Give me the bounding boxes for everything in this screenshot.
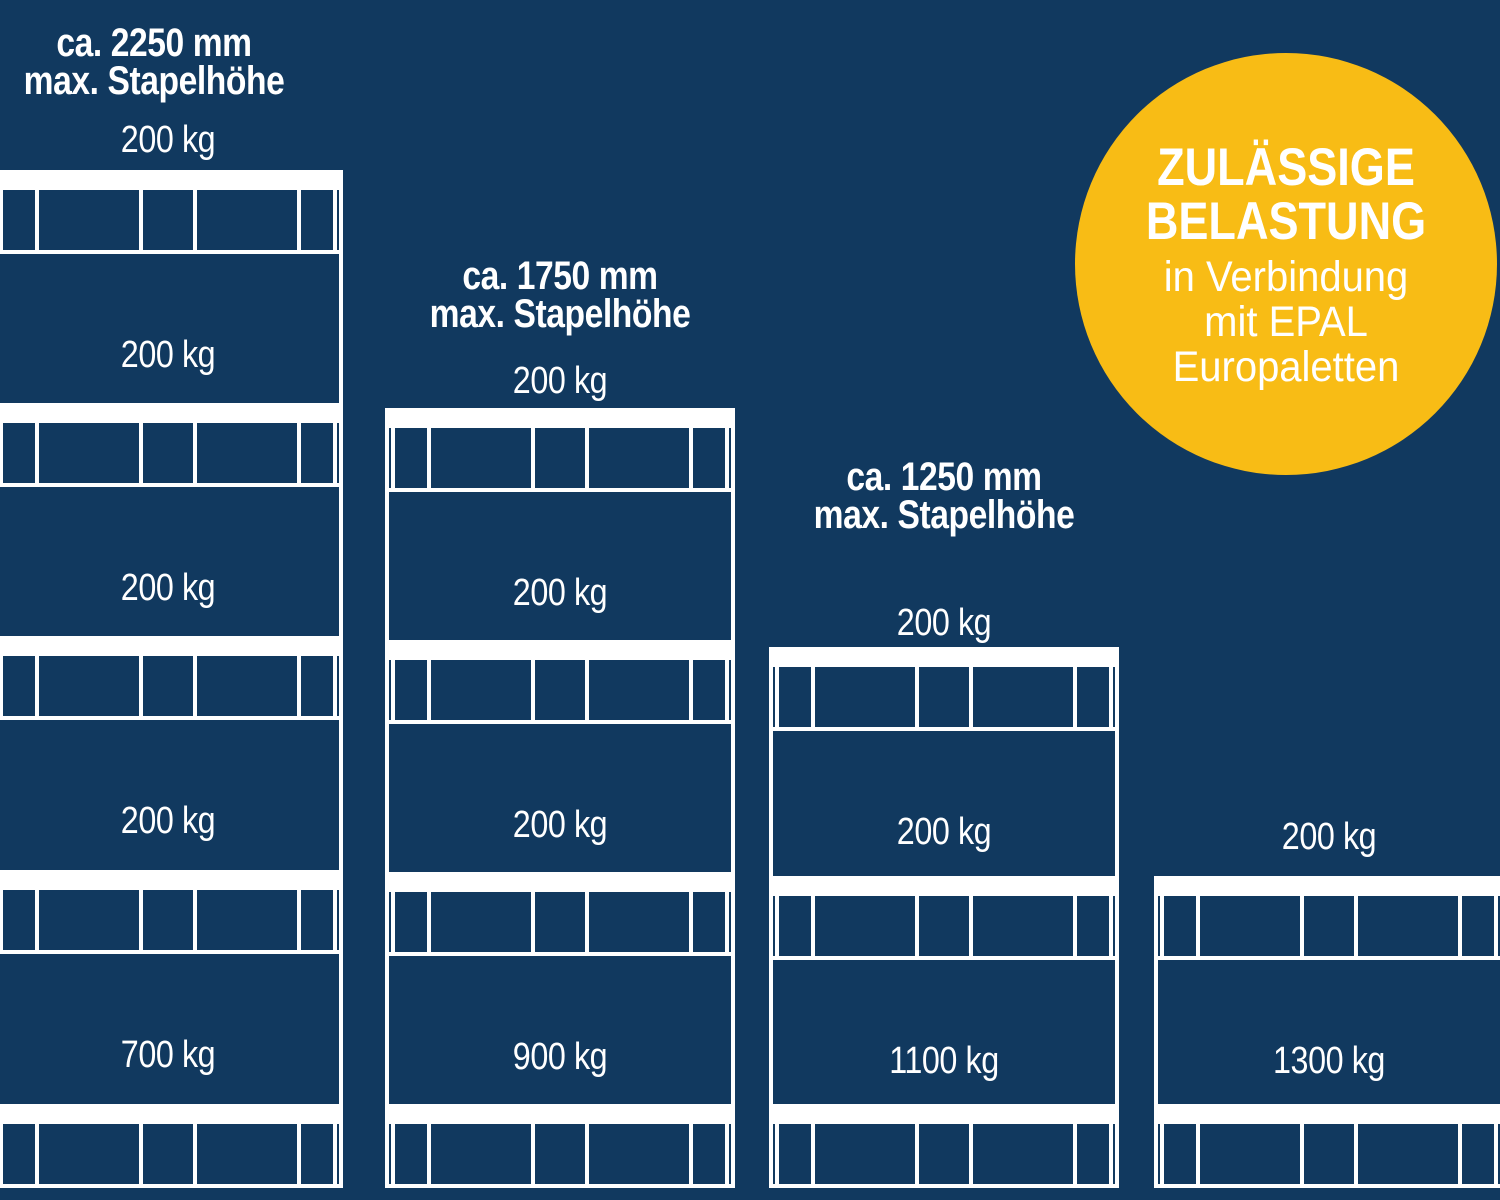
load-box-wall (339, 954, 343, 1104)
stack-height-value: ca. 1750 mm (413, 257, 707, 295)
epal-load-badge: ZULÄSSIGE BELASTUNG in Verbindung mit EP… (1075, 53, 1497, 475)
stack-height-value: ca. 2250 mm (7, 24, 301, 62)
load-label: 200 kg (19, 564, 317, 612)
pallet (385, 1104, 735, 1188)
pallet (0, 636, 343, 720)
load-box-wall (731, 724, 735, 872)
badge-title: ZULÄSSIGE BELASTUNG (1107, 141, 1466, 249)
load-label: 200 kg (795, 599, 1093, 647)
load-label: 900 kg (411, 1033, 709, 1081)
load-label: 200 kg (411, 569, 709, 617)
stack-1-title: ca. 2250 mm max. Stapelhöhe (7, 24, 301, 100)
load-label: 1300 kg (1180, 1037, 1478, 1085)
pallet (385, 640, 735, 724)
stack-height-caption: max. Stapelhöhe (7, 62, 301, 100)
pallet (0, 170, 343, 254)
pallet (769, 647, 1119, 731)
pallet (385, 408, 735, 492)
badge-subtitle: in Verbindung mit EPAL Europaletten (1090, 255, 1482, 390)
load-box-wall (1154, 960, 1158, 1104)
pallet (0, 1104, 343, 1188)
pallet (769, 876, 1119, 960)
badge-subtitle-line3: Europaletten (1090, 345, 1482, 390)
load-box-wall (385, 724, 389, 872)
load-label: 700 kg (19, 1031, 317, 1079)
infographic-canvas: ca. 2250 mm max. Stapelhöhe 200 kg 200 k… (0, 0, 1500, 1200)
badge-subtitle-line1: in Verbindung (1090, 255, 1482, 300)
pallet (769, 1104, 1119, 1188)
load-box-wall (339, 487, 343, 636)
load-label: 200 kg (411, 801, 709, 849)
load-box-wall (769, 731, 773, 876)
load-label: 200 kg (1180, 813, 1478, 861)
load-box-wall (731, 492, 735, 640)
pallet-stack-1: ca. 2250 mm max. Stapelhöhe 200 kg 200 k… (0, 0, 343, 1200)
pallet (0, 870, 343, 954)
badge-title-line2: BELASTUNG (1107, 195, 1466, 249)
stack-3-title: ca. 1250 mm max. Stapelhöhe (797, 458, 1091, 534)
stack-2-title: ca. 1750 mm max. Stapelhöhe (413, 257, 707, 333)
pallet-stack-3: ca. 1250 mm max. Stapelhöhe 200 kg 200 k… (769, 0, 1119, 1200)
load-box-wall (1115, 731, 1119, 876)
load-label: 200 kg (795, 808, 1093, 856)
load-box-wall (385, 956, 389, 1104)
load-label: 200 kg (19, 331, 317, 379)
pallet (0, 403, 343, 487)
pallet (1154, 876, 1500, 960)
stack-height-caption: max. Stapelhöhe (797, 496, 1091, 534)
load-label: 200 kg (19, 797, 317, 845)
load-box-wall (339, 720, 343, 870)
pallet (1154, 1104, 1500, 1188)
pallet-stack-2: ca. 1750 mm max. Stapelhöhe 200 kg 200 k… (385, 0, 735, 1200)
load-box-wall (731, 956, 735, 1104)
load-box-wall (385, 492, 389, 640)
load-label: 200 kg (411, 357, 709, 405)
stack-height-value: ca. 1250 mm (797, 458, 1091, 496)
load-box-wall (769, 960, 773, 1104)
load-label: 1100 kg (795, 1037, 1093, 1085)
load-box-wall (1115, 960, 1119, 1104)
pallet (385, 872, 735, 956)
stack-height-caption: max. Stapelhöhe (413, 295, 707, 333)
load-box-wall (339, 254, 343, 403)
load-label: 200 kg (19, 116, 317, 164)
badge-subtitle-line2: mit EPAL (1090, 300, 1482, 345)
badge-title-line1: ZULÄSSIGE (1107, 141, 1466, 195)
